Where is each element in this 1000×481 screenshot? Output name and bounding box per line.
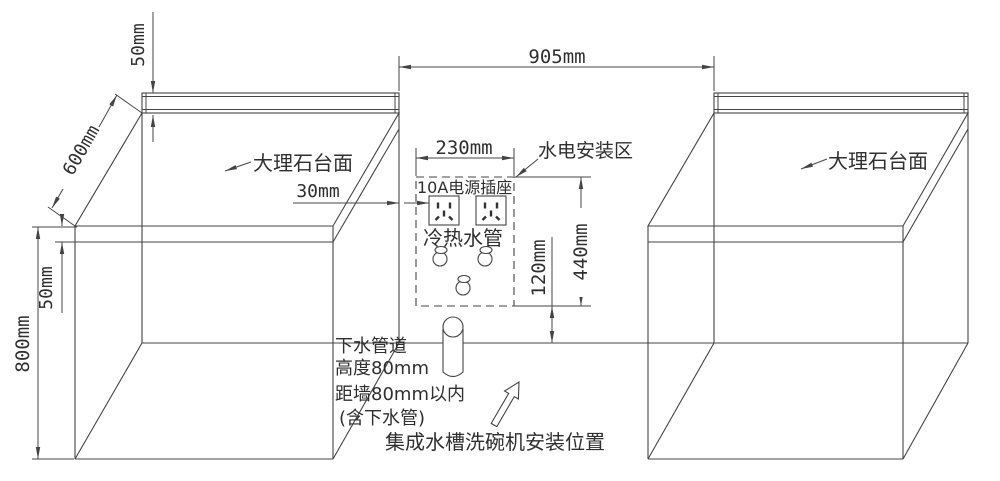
- install-direction-arrow-icon: [491, 382, 519, 427]
- drain-note-line2: 高度80mm: [335, 358, 429, 379]
- dimension-230: 230mm: [416, 137, 514, 176]
- dim-zone-bottom-offset: 120mm: [528, 239, 550, 296]
- dim-backsplash-height: 50mm: [128, 23, 149, 66]
- left-backsplash-strip: [142, 93, 399, 113]
- marble-right-leader: [801, 159, 827, 169]
- right-backsplash-strip: [714, 93, 968, 113]
- water-pipes-label: 冷热水管: [423, 226, 503, 250]
- dim-socket-offset: 30mm: [296, 181, 339, 202]
- installation-diagram-page: 905mm 230mm 440mm 120mm 30mm 800mm 50mm: [0, 0, 1000, 481]
- utility-zone-leader: [516, 159, 538, 177]
- water-pipe-icon-3: [456, 276, 470, 296]
- dim-zone-height: 440mm: [570, 223, 592, 280]
- dim-gap-width: 905mm: [528, 46, 585, 68]
- drain-pipe-icon: [443, 317, 463, 377]
- dim-cabinet-height: 800mm: [12, 315, 34, 372]
- dim-counter-thickness: 50mm: [36, 266, 57, 309]
- dimension-440: 440mm: [514, 177, 592, 306]
- dimension-50-backsplash: 50mm: [128, 12, 153, 142]
- marble-left-leader: [225, 162, 251, 171]
- drain-note-line4: (含下水管): [339, 408, 425, 429]
- drain-note-line3: 距墙80mm以内: [335, 384, 465, 405]
- dimension-50-countertop: 50mm: [36, 214, 78, 313]
- installation-diagram: 905mm 230mm 440mm 120mm 30mm 800mm 50mm: [0, 0, 1000, 481]
- power-socket-icon-right: [476, 196, 506, 225]
- dimension-120: 120mm: [528, 237, 552, 343]
- dimension-800: 800mm: [12, 227, 77, 459]
- install-position-label: 集成水槽洗碗机安装位置: [385, 430, 605, 454]
- dimension-905: 905mm: [399, 46, 714, 91]
- dim-counter-depth: 600mm: [59, 122, 104, 179]
- dimension-30: 30mm: [293, 181, 429, 203]
- drain-note-line1: 下水管道: [335, 336, 407, 357]
- marble-countertop-label-left: 大理石台面: [253, 151, 353, 175]
- marble-countertop-label-right: 大理石台面: [828, 149, 928, 173]
- utility-zone-label: 水电安装区: [538, 140, 633, 162]
- dim-zone-width: 230mm: [435, 137, 492, 159]
- power-socket-icon-left: [429, 196, 459, 225]
- dimension-600: 600mm: [48, 94, 142, 226]
- socket-label: 10A电源插座: [417, 178, 512, 197]
